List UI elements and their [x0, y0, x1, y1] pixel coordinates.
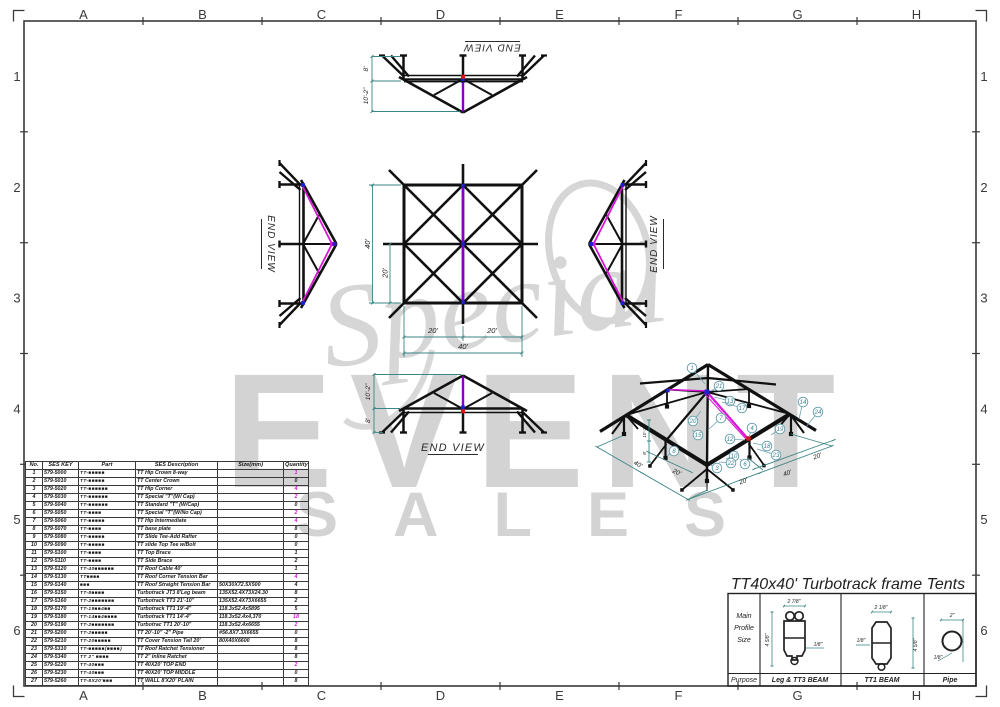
- svg-text:4 5/8": 4 5/8": [913, 638, 919, 651]
- svg-text:Size: Size: [737, 637, 751, 644]
- svg-text:5: 5: [13, 512, 20, 527]
- svg-text:10'-2": 10'-2": [363, 87, 370, 104]
- svg-text:40': 40': [363, 239, 372, 249]
- svg-text:C: C: [317, 688, 326, 703]
- svg-text:Purpose: Purpose: [731, 677, 757, 684]
- svg-text:Main: Main: [736, 613, 751, 620]
- svg-text:6: 6: [13, 623, 20, 638]
- svg-text:TT40x40' Turbotrack frame Tent: TT40x40' Turbotrack frame Tents: [731, 576, 965, 593]
- svg-text:10'-2": 10'-2": [642, 426, 647, 438]
- svg-text:E: E: [555, 688, 564, 703]
- svg-text:20': 20': [427, 326, 438, 335]
- svg-text:22: 22: [727, 461, 735, 467]
- svg-text:Pipe: Pipe: [943, 677, 958, 684]
- svg-text:1: 1: [690, 366, 693, 372]
- svg-text:21: 21: [715, 384, 723, 390]
- svg-text:2: 2: [980, 180, 987, 195]
- svg-text:D: D: [436, 7, 445, 22]
- svg-text:20': 20': [381, 268, 390, 279]
- svg-text:F: F: [675, 7, 683, 22]
- svg-text:19: 19: [777, 427, 784, 433]
- svg-text:10'-2": 10'-2": [365, 383, 372, 400]
- svg-text:2": 2": [949, 613, 955, 619]
- svg-text:F: F: [675, 688, 683, 703]
- svg-text:C: C: [317, 7, 326, 22]
- svg-text:E: E: [555, 7, 564, 22]
- svg-text:END VIEW: END VIEW: [265, 215, 276, 273]
- svg-text:D: D: [436, 688, 445, 703]
- svg-text:12: 12: [727, 437, 734, 443]
- svg-text:H: H: [912, 7, 921, 22]
- svg-text:2 1/8": 2 1/8": [874, 605, 888, 611]
- svg-text:A: A: [79, 7, 88, 22]
- svg-text:3: 3: [980, 291, 987, 306]
- svg-text:1/8": 1/8": [857, 638, 866, 644]
- svg-text:TT1 BEAM: TT1 BEAM: [865, 677, 900, 684]
- svg-text:8': 8': [365, 417, 372, 423]
- svg-text:1: 1: [13, 69, 20, 84]
- svg-text:8': 8': [363, 66, 370, 72]
- svg-text:8': 8': [642, 451, 647, 455]
- svg-text:2 7/8": 2 7/8": [787, 599, 801, 605]
- svg-text:1/8": 1/8": [814, 642, 823, 648]
- svg-text:G: G: [792, 688, 802, 703]
- svg-text:1: 1: [980, 69, 987, 84]
- svg-text:END VIEW: END VIEW: [649, 215, 660, 273]
- svg-text:G: G: [792, 7, 802, 22]
- svg-text:B: B: [198, 7, 207, 22]
- svg-text:6: 6: [980, 623, 987, 638]
- svg-text:5: 5: [980, 512, 987, 527]
- svg-text:2: 2: [13, 180, 20, 195]
- svg-text:40': 40': [458, 342, 468, 351]
- svg-text:14: 14: [800, 400, 807, 406]
- svg-text:23: 23: [772, 453, 780, 459]
- svg-text:18: 18: [764, 444, 771, 450]
- svg-text:20': 20': [486, 326, 497, 335]
- svg-text:1/8": 1/8": [934, 655, 943, 661]
- svg-text:H: H: [912, 688, 921, 703]
- svg-text:END VIEW: END VIEW: [463, 42, 521, 53]
- svg-text:SALES: SALES: [296, 480, 781, 550]
- svg-text:B: B: [198, 688, 207, 703]
- svg-text:24: 24: [814, 410, 822, 416]
- svg-text:A: A: [79, 688, 88, 703]
- svg-text:20: 20: [689, 419, 697, 425]
- svg-text:17: 17: [739, 406, 746, 412]
- svg-text:END VIEW: END VIEW: [421, 442, 485, 454]
- svg-text:3: 3: [13, 291, 20, 306]
- svg-text:4: 4: [980, 401, 987, 416]
- svg-text:15: 15: [695, 433, 702, 439]
- svg-text:4 5/8": 4 5/8": [765, 633, 771, 646]
- svg-text:Leg & TT3 BEAM: Leg & TT3 BEAM: [772, 677, 829, 684]
- svg-text:4: 4: [13, 401, 20, 416]
- svg-text:Profile: Profile: [734, 625, 754, 632]
